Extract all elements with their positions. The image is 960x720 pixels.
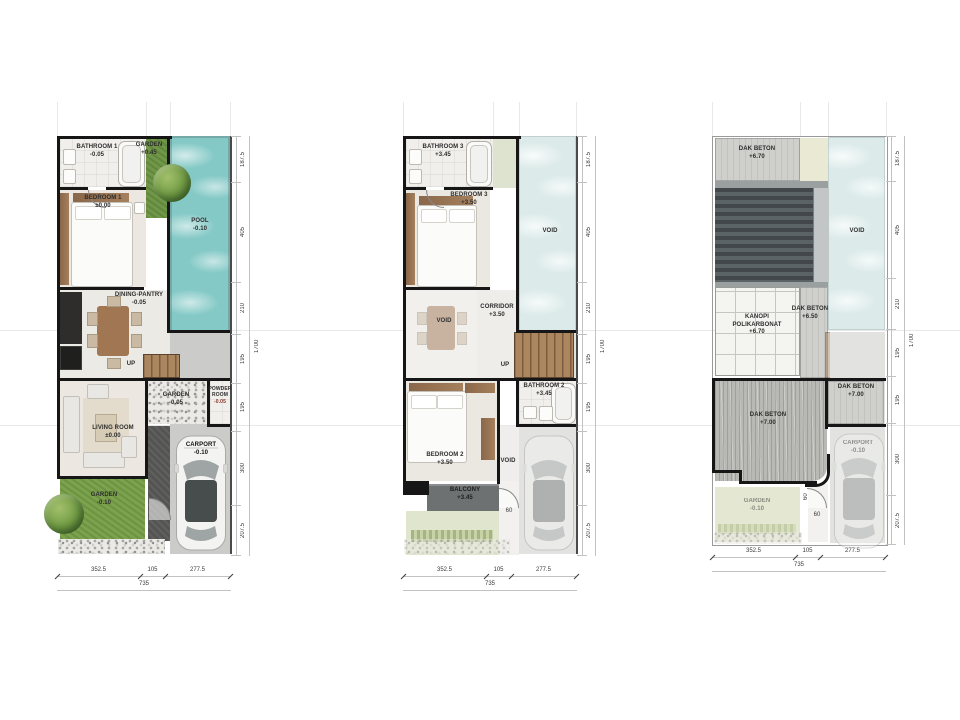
dim-value: 187.5 — [892, 136, 904, 181]
dim-value: 105 — [486, 567, 511, 573]
entry-width-dim: 60 — [808, 512, 826, 518]
dim-line — [904, 136, 905, 545]
wall — [403, 136, 521, 139]
wall-rounded-corner — [805, 454, 830, 487]
room-label-carport: CARPORT-0.10 — [175, 442, 227, 457]
wall — [403, 378, 577, 381]
gravel-strip — [404, 539, 510, 554]
chair — [87, 334, 98, 348]
dim-value: 405 — [583, 182, 595, 282]
pillow — [421, 209, 447, 223]
room-label-garden-top: GARDEN+0.45 — [127, 142, 171, 157]
dim-value: 277.5 — [511, 567, 576, 573]
room-label-garden-ghost: GARDEN-0.10 — [732, 498, 782, 513]
wall — [145, 381, 148, 478]
void-small-area — [500, 426, 519, 481]
entry-walkway — [148, 426, 170, 541]
pillow — [411, 395, 437, 409]
dim-value: 187.5 — [237, 136, 249, 182]
room-label-dak-right: DAK BETON+7.00 — [830, 384, 882, 399]
site-edge — [576, 136, 578, 554]
wardrobe — [481, 418, 495, 460]
grid-line — [57, 102, 58, 136]
wall — [167, 330, 231, 333]
dim-line — [249, 136, 250, 556]
car-top-view — [522, 434, 576, 552]
dim-value: 195 — [583, 383, 595, 431]
toilet — [63, 169, 76, 184]
room-label-garden-mid: GARDEN-0.05 — [149, 392, 203, 407]
room-label-void-small: VOID — [489, 458, 527, 466]
dim-value: 207.5 — [583, 505, 595, 556]
entry-width-dim: 60 — [500, 508, 518, 514]
dim-value: 210 — [892, 278, 904, 329]
label-up: UP — [497, 362, 513, 370]
toilet — [409, 169, 422, 184]
grid-line — [170, 102, 171, 136]
wall — [403, 481, 429, 495]
dining-table-ghost — [427, 306, 455, 350]
stairs — [514, 332, 574, 378]
dim-total: 735 — [403, 581, 577, 587]
dim-value: 405 — [237, 182, 249, 282]
wall — [516, 424, 577, 427]
dim-value: 195 — [892, 376, 904, 423]
room-label-bathroom1: BATHROOM 1-0.05 — [67, 144, 127, 159]
dim-value: 187.5 — [583, 136, 595, 182]
grid-line — [576, 102, 577, 136]
dim-value: 207.5 — [892, 495, 904, 545]
dim-line — [595, 136, 596, 556]
wardrobe — [60, 193, 69, 285]
room-label-bedroom3: BEDROOM 3+3.50 — [441, 192, 497, 207]
sofa — [63, 396, 80, 453]
dim-value: 300 — [892, 423, 904, 495]
grid-line — [146, 102, 147, 136]
room-label-bathroom3: BATHROOM 3+3.45 — [413, 144, 473, 159]
room-label-void: VOID — [840, 228, 874, 236]
dim-value: 195 — [237, 334, 249, 383]
tree — [44, 494, 84, 534]
room-label-bathroom2: BATHROOM 2+3.45 — [515, 383, 573, 398]
dim-value: 210 — [237, 282, 249, 334]
floor-plan-upper: BATHROOM 3+3.45 BEDROOM 3+3.50 VOID CORR… — [403, 136, 579, 606]
wall — [406, 187, 426, 190]
roof-frame — [813, 188, 829, 282]
dim-slash — [574, 574, 580, 580]
sink — [523, 406, 537, 419]
dim-line — [57, 590, 231, 591]
grid-line — [712, 102, 713, 136]
wall — [825, 424, 886, 427]
wall — [497, 381, 500, 484]
room-label-garden-bottom: GARDEN-0.10 — [79, 492, 129, 507]
dim-value: 207.5 — [237, 505, 249, 556]
drawing-sheet: BATHROOM 1-0.05 GARDEN+0.45 POOL-0.10 BE… — [0, 0, 960, 720]
dim-value: 195 — [892, 329, 904, 376]
dim-line — [57, 576, 231, 577]
bed-headboard — [409, 383, 463, 391]
wall — [712, 378, 886, 381]
floor-plan-ground: BATHROOM 1-0.05 GARDEN+0.45 POOL-0.10 BE… — [57, 136, 233, 606]
room-label-dining: DINING-PANTRY-0.05 — [109, 292, 169, 307]
wardrobe — [406, 193, 415, 285]
dim-value: 105 — [140, 567, 165, 573]
wall — [825, 381, 828, 429]
dim-value: 195 — [237, 383, 249, 431]
chair-ghost — [457, 332, 467, 345]
room-label-living: LIVING ROOM±0.00 — [83, 425, 143, 440]
room-label-pool: POOL-0.10 — [177, 218, 223, 233]
room-label-void-right: VOID — [533, 228, 567, 236]
grid-line — [230, 102, 231, 136]
room-label-bedroom2: BEDROOM 2+3.50 — [415, 452, 475, 467]
dim-line — [712, 557, 886, 558]
room-label-bedroom1: BEDROOM 1±0.00 — [73, 195, 133, 210]
dim-slash — [883, 555, 889, 561]
dim-total: 1700 — [251, 136, 263, 556]
grid-line — [828, 102, 829, 136]
dim-line — [403, 590, 577, 591]
dak-beton-mid-area — [800, 287, 828, 378]
wall — [712, 378, 715, 473]
grid-line — [493, 102, 494, 136]
dim-value: 300 — [583, 431, 595, 505]
planter-strip — [800, 138, 828, 181]
wall — [406, 287, 490, 290]
dim-total: 735 — [712, 562, 886, 568]
wall — [57, 136, 172, 139]
stairs — [143, 354, 180, 378]
pillow — [437, 395, 463, 409]
dim-value: 352.5 — [712, 548, 795, 554]
roof-parapet — [715, 181, 828, 188]
dim-value: 210 — [583, 282, 595, 334]
wall — [57, 476, 148, 479]
desk — [465, 383, 495, 393]
armchair — [87, 384, 109, 399]
dim-value: 105 — [795, 548, 820, 554]
wall — [106, 187, 146, 190]
dim-value: 277.5 — [165, 567, 230, 573]
nightstand — [134, 202, 145, 214]
room-label-dak-top: DAK BETON+6.70 — [728, 146, 786, 161]
gravel-strip — [714, 532, 802, 544]
wall — [207, 424, 231, 427]
room-label-void-left: VOID — [429, 318, 459, 326]
refrigerator — [60, 346, 82, 370]
wall — [60, 287, 144, 290]
dim-value: 405 — [892, 181, 904, 278]
wall — [516, 330, 576, 333]
grid-line — [403, 102, 404, 136]
entry-width-dim: 60 — [800, 488, 812, 506]
dim-value: 300 — [237, 431, 249, 505]
wall — [60, 187, 88, 190]
pillow — [449, 209, 475, 223]
room-label-kanopi: KANOPI POLIKARBONAT+6.70 — [724, 314, 790, 337]
dim-total: 735 — [57, 581, 231, 587]
dim-line — [712, 571, 886, 572]
kitchen-counter — [60, 292, 82, 344]
dim-slash — [228, 574, 234, 580]
dim-value: 195 — [583, 334, 595, 383]
floor-plan-roof: DAK BETON+6.70 VOID DAK BETON+6.50 KANOP… — [712, 136, 888, 606]
dining-table — [97, 306, 129, 356]
wall — [712, 470, 742, 473]
dim-line — [403, 576, 577, 577]
tree — [153, 164, 191, 202]
chair — [131, 334, 142, 348]
grid-line — [886, 102, 887, 136]
dim-total: 1700 — [597, 136, 609, 556]
label-up: UP — [123, 361, 139, 369]
toilet — [539, 406, 553, 421]
dim-value: 352.5 — [57, 567, 140, 573]
gravel-strip — [58, 539, 165, 554]
room-label-carport-ghost: CARPORT-0.10 — [832, 440, 884, 455]
wall — [516, 136, 519, 332]
sofa — [83, 452, 125, 468]
dark-roof-deck — [715, 188, 813, 282]
chair-ghost — [417, 332, 427, 345]
wall — [444, 187, 493, 190]
chair-ghost — [417, 312, 427, 325]
room-label-dak-left: DAK BETON+7.00 — [738, 412, 798, 427]
dim-total: 1700 — [906, 136, 918, 545]
chair — [87, 312, 98, 326]
grid-line — [800, 102, 801, 136]
room-label-balcony: BALCONY+3.45 — [437, 487, 493, 502]
wall — [57, 378, 231, 381]
site-edge — [230, 136, 232, 554]
room-label-powder: POWDER ROOM-0.05 — [208, 386, 232, 405]
dim-value: 352.5 — [403, 567, 486, 573]
room-label-corridor: CORRIDOR+3.50 — [473, 304, 521, 319]
room-label-dak-mid: DAK BETON+6.50 — [788, 306, 832, 321]
grid-line — [519, 102, 520, 136]
chair — [131, 312, 142, 326]
chair — [107, 358, 121, 369]
